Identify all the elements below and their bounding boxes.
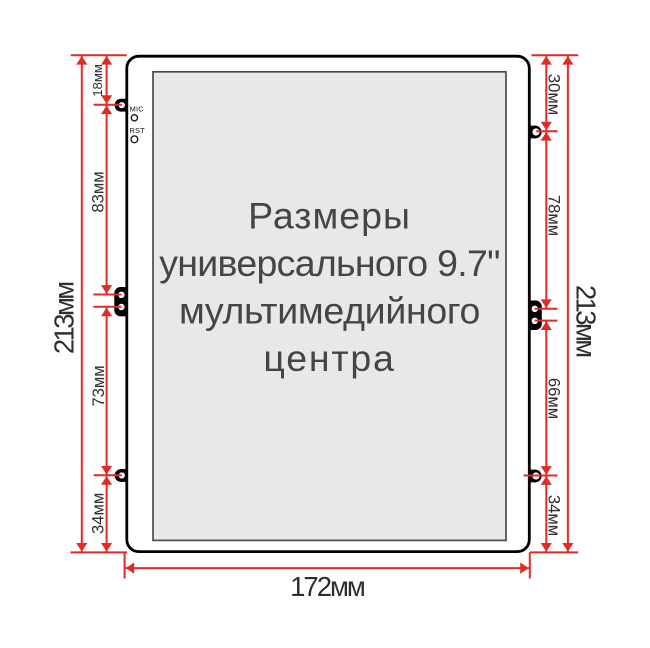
svg-text:универсального 9.7": универсального 9.7" bbox=[159, 242, 499, 284]
svg-text:центра: центра bbox=[263, 337, 395, 379]
svg-text:18мм: 18мм bbox=[90, 64, 105, 97]
svg-text:34мм: 34мм bbox=[88, 493, 107, 534]
svg-text:30мм: 30мм bbox=[544, 74, 563, 115]
svg-text:172мм: 172мм bbox=[290, 571, 365, 602]
svg-text:Размеры: Размеры bbox=[248, 195, 411, 237]
svg-text:213мм: 213мм bbox=[571, 285, 602, 357]
svg-text:73мм: 73мм bbox=[89, 365, 108, 406]
svg-text:83мм: 83мм bbox=[88, 171, 107, 212]
svg-text:RST: RST bbox=[130, 126, 146, 135]
svg-text:мультимедийного: мультимедийного bbox=[179, 290, 480, 332]
svg-text:78мм: 78мм bbox=[544, 195, 563, 236]
svg-text:66мм: 66мм bbox=[544, 378, 563, 419]
svg-text:34мм: 34мм bbox=[544, 495, 563, 536]
svg-text:MIC: MIC bbox=[130, 104, 145, 113]
svg-text:213мм: 213мм bbox=[49, 282, 80, 354]
